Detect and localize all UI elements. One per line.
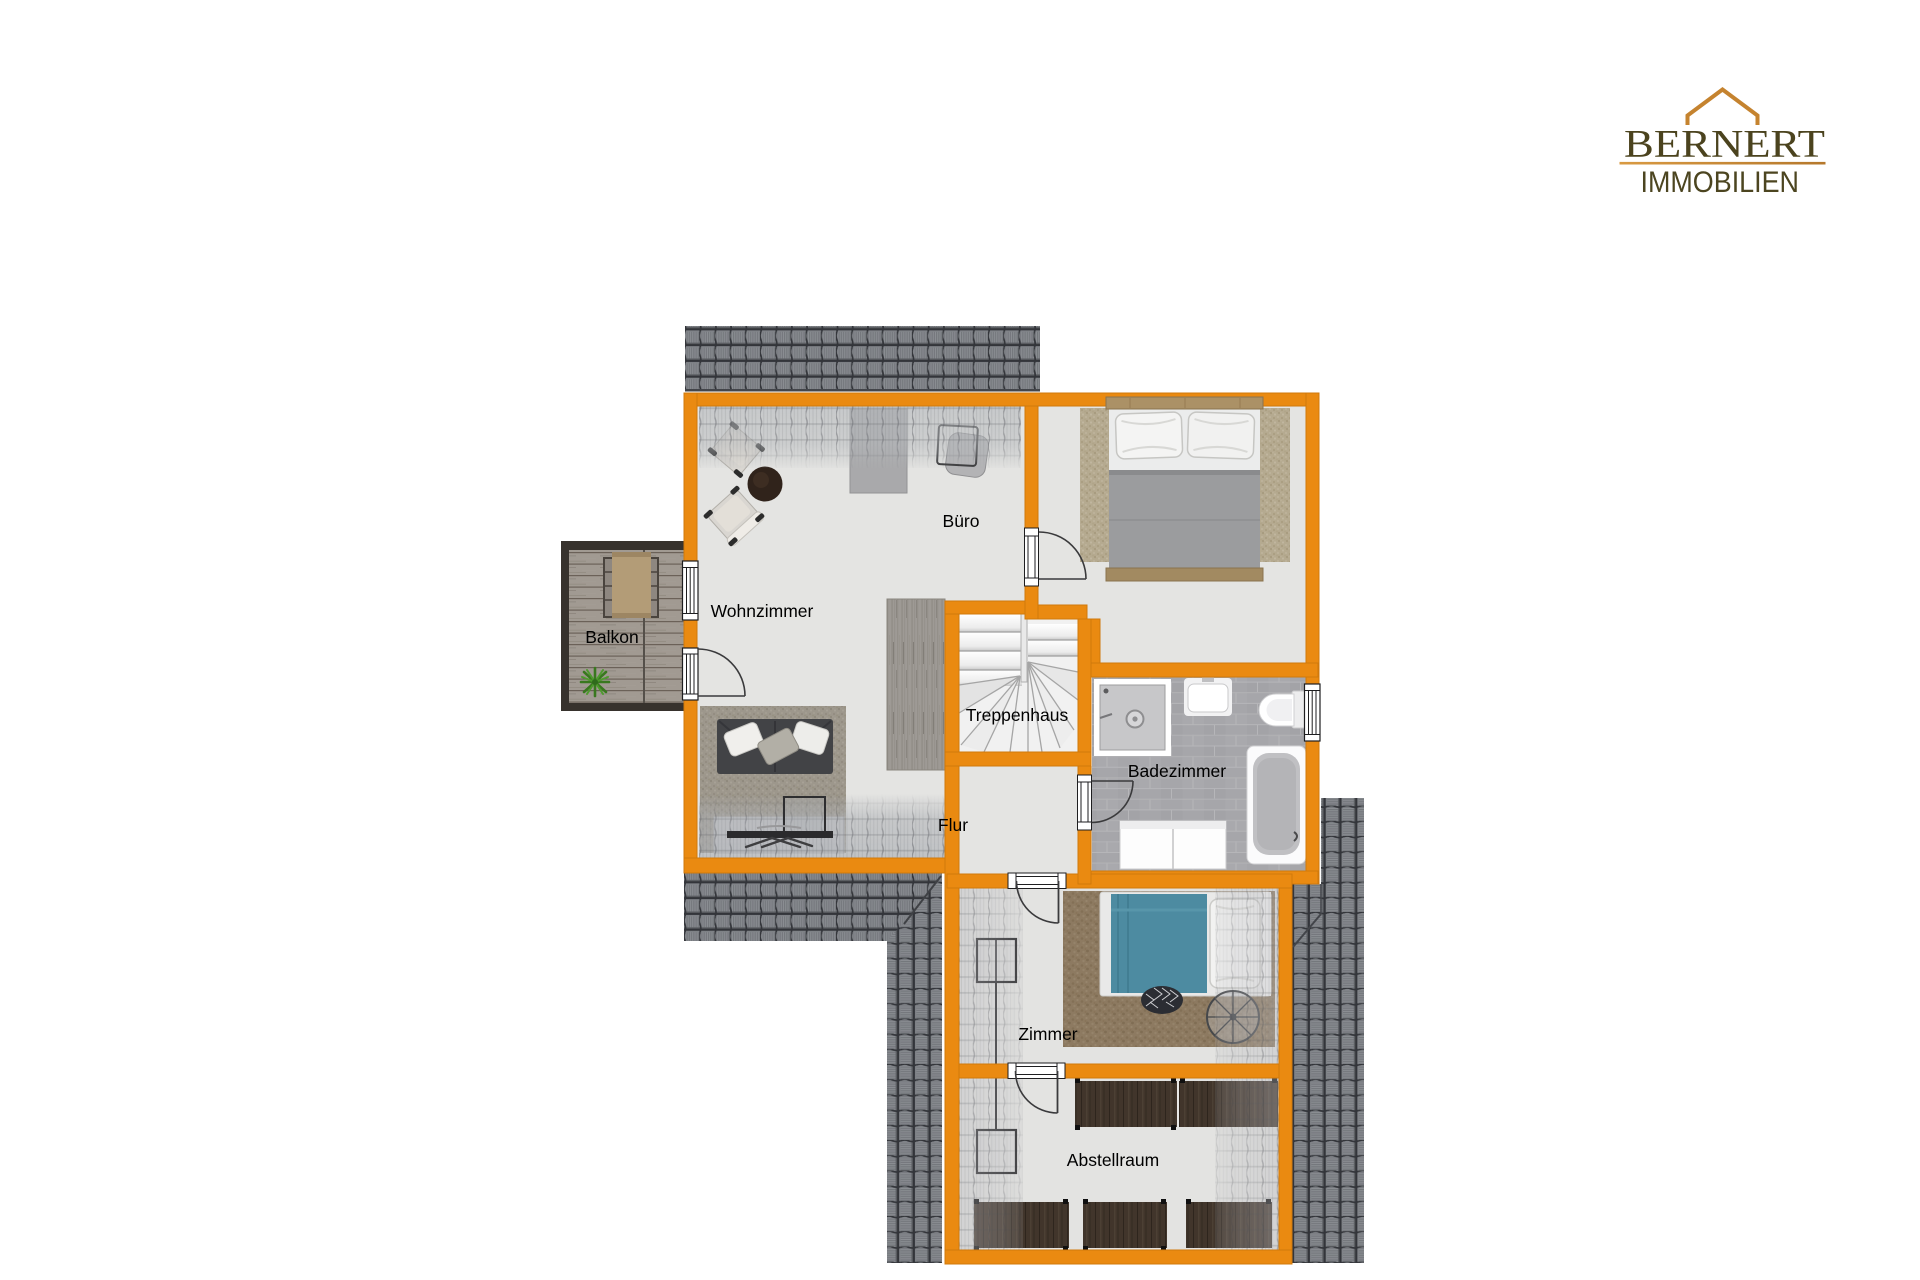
svg-text:Treppenhaus: Treppenhaus	[966, 705, 1069, 725]
svg-text:IMMOBILIEN: IMMOBILIEN	[1641, 166, 1800, 199]
svg-text:Flur: Flur	[938, 815, 968, 835]
svg-text:Büro: Büro	[943, 511, 980, 531]
svg-text:BERNERT: BERNERT	[1624, 123, 1825, 166]
svg-text:Zimmer: Zimmer	[1018, 1024, 1077, 1044]
svg-text:Wohnzimmer: Wohnzimmer	[711, 601, 814, 621]
svg-text:Balkon: Balkon	[585, 627, 639, 647]
svg-text:Abstellraum: Abstellraum	[1067, 1150, 1159, 1170]
svg-text:Badezimmer: Badezimmer	[1128, 761, 1226, 781]
